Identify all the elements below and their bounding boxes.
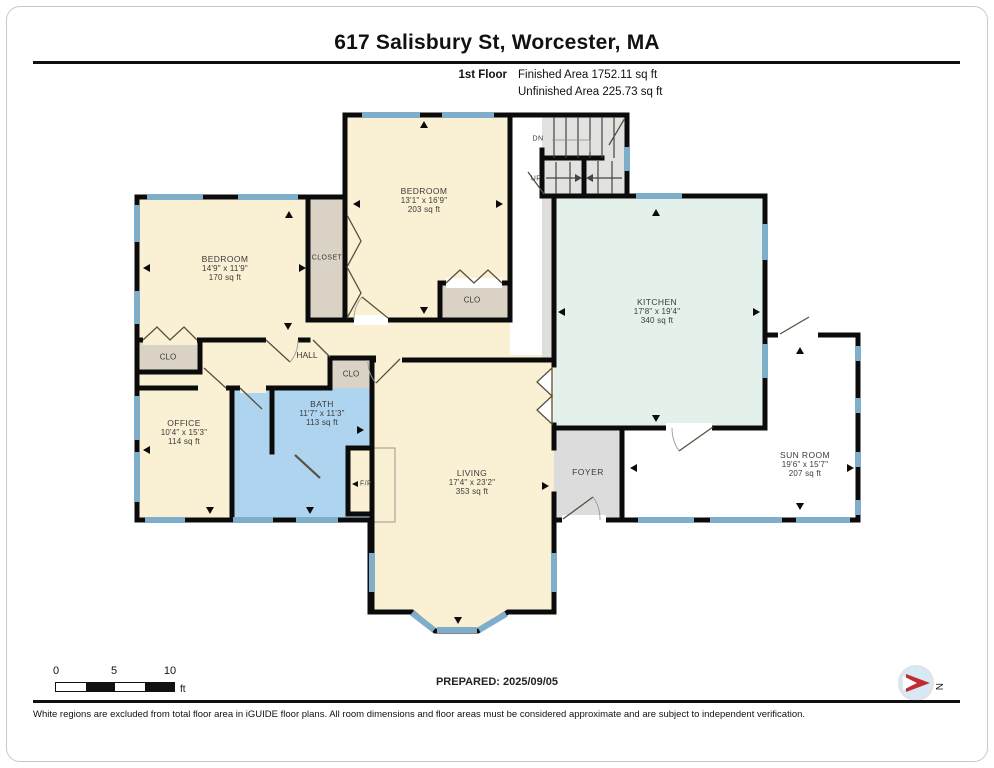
room-dims: 14'9" x 11'9" xyxy=(202,264,249,273)
room-name: KITCHEN xyxy=(634,297,680,307)
prepared-date: PREPARED: 2025/09/05 xyxy=(436,676,558,688)
room-label-bedroom-top: BEDROOM 13'1" x 16'9" 203 sq ft xyxy=(401,186,448,214)
label-fireplace: F/P xyxy=(360,481,372,488)
footer-divider xyxy=(33,700,960,703)
room-area: 113 sq ft xyxy=(299,418,344,427)
room-name: LIVING xyxy=(449,468,495,478)
room-dims: 19'6" x 15'7" xyxy=(780,460,830,469)
room-area: 203 sq ft xyxy=(401,205,448,214)
room-name: OFFICE xyxy=(161,418,207,428)
room-name: BATH xyxy=(299,399,344,409)
label-closet: CLOSET xyxy=(312,255,342,262)
room-fills xyxy=(137,115,858,631)
room-label-bath: BATH 11'7" x 11'3" 113 sq ft xyxy=(299,399,344,427)
scale-tick-5: 5 xyxy=(111,665,117,677)
scale-unit: ft xyxy=(180,684,186,695)
label-stairs-up: UP xyxy=(531,176,542,183)
compass-north-label: N xyxy=(933,683,944,690)
disclaimer-text: White regions are excluded from total fl… xyxy=(33,709,805,720)
room-label-living: LIVING 17'4" x 23'2" 353 sq ft xyxy=(449,468,495,496)
room-dims: 17'4" x 23'2" xyxy=(449,478,495,487)
label-clo-hall: CLO xyxy=(343,370,359,379)
scale-bar xyxy=(55,682,175,692)
scale-seg xyxy=(56,683,86,691)
room-label-bedroom-left: BEDROOM 14'9" x 11'9" 170 sq ft xyxy=(202,254,249,282)
room-area: 353 sq ft xyxy=(449,487,495,496)
room-area: 340 sq ft xyxy=(634,316,680,325)
room-name: SUN ROOM xyxy=(780,450,830,460)
room-dims: 11'7" x 11'3" xyxy=(299,409,344,418)
scale-seg xyxy=(115,683,145,691)
label-foyer: FOYER xyxy=(572,467,604,477)
room-name: BEDROOM xyxy=(202,254,249,264)
floor-plan-drawing xyxy=(0,0,994,768)
floorplan-page: 617 Salisbury St, Worcester, MA 1st Floo… xyxy=(0,0,994,768)
room-area: 207 sq ft xyxy=(780,469,830,478)
room-area: 170 sq ft xyxy=(202,273,249,282)
room-dims: 17'8" x 19'4" xyxy=(634,307,680,316)
label-hall: HALL xyxy=(296,350,317,360)
label-clo-top: CLO xyxy=(464,296,480,305)
room-area: 114 sq ft xyxy=(161,437,207,446)
scale-seg xyxy=(86,683,116,691)
room-label-kitchen: KITCHEN 17'8" x 19'4" 340 sq ft xyxy=(634,297,680,325)
room-dims: 10'4" x 15'3" xyxy=(161,428,207,437)
room-label-office: OFFICE 10'4" x 15'3" 114 sq ft xyxy=(161,418,207,446)
scale-tick-10: 10 xyxy=(164,665,176,677)
room-label-sunroom: SUN ROOM 19'6" x 15'7" 207 sq ft xyxy=(780,450,830,478)
label-stairs-down: DN xyxy=(533,136,544,143)
label-clo-left: CLO xyxy=(160,353,176,362)
scale-tick-0: 0 xyxy=(53,665,59,677)
room-name: BEDROOM xyxy=(401,186,448,196)
room-dims: 13'1" x 16'9" xyxy=(401,196,448,205)
scale-seg xyxy=(145,683,175,691)
